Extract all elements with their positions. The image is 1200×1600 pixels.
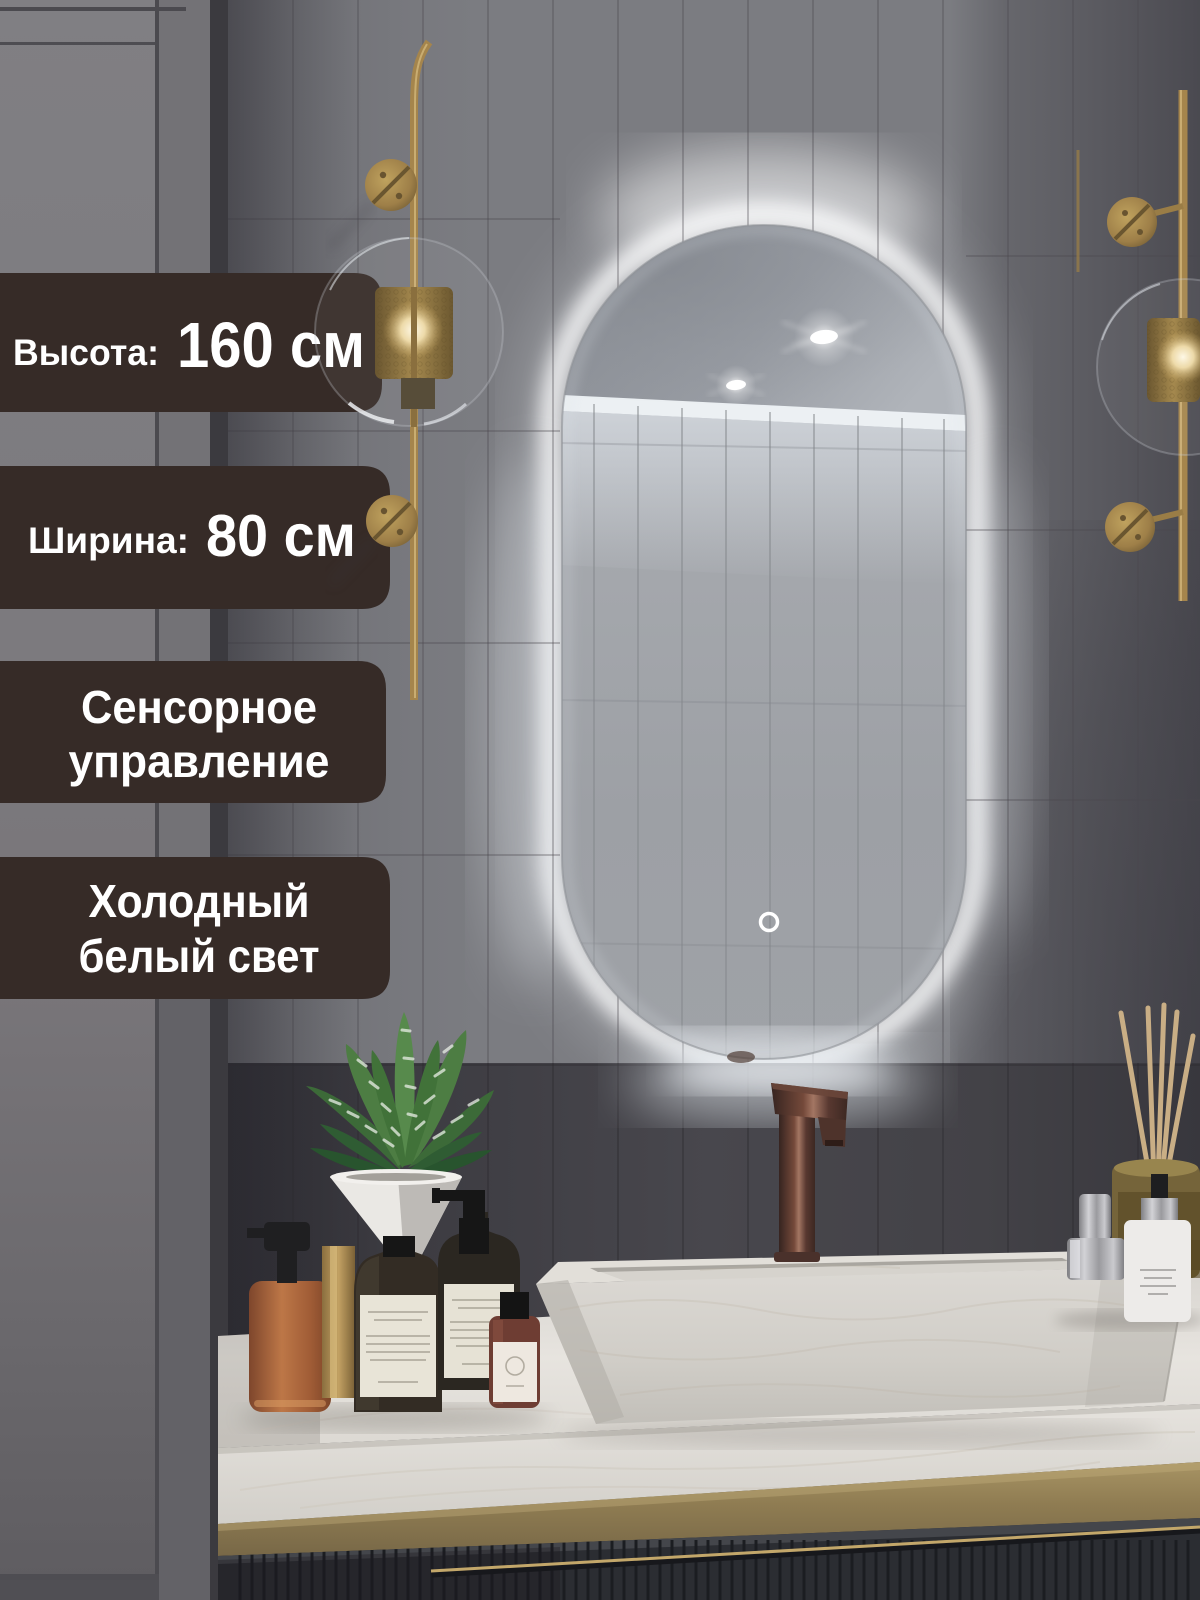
svg-text:80 см: 80 см <box>206 503 356 569</box>
svg-text:Ширина:: Ширина: <box>28 520 189 561</box>
svg-text:Холодный: Холодный <box>89 875 310 927</box>
svg-text:управление: управление <box>69 735 330 787</box>
svg-text:белый свет: белый свет <box>79 930 320 982</box>
svg-text:Сенсорное: Сенсорное <box>81 681 317 733</box>
svg-text:Высота:: Высота: <box>13 332 159 373</box>
